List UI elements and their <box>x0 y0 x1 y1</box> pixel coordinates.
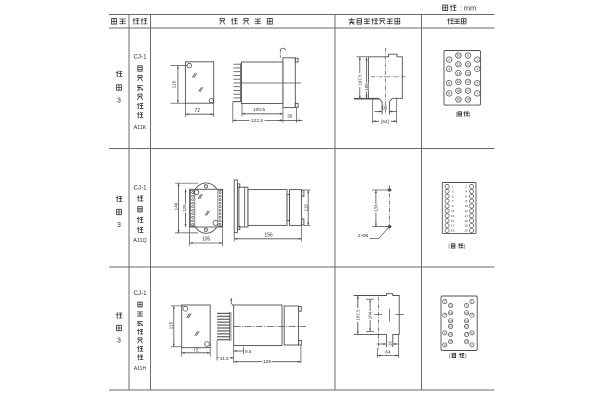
svg-text:11: 11 <box>451 209 454 213</box>
svg-text:19: 19 <box>466 98 470 102</box>
svg-text:107.5: 107.5 <box>355 309 360 321</box>
svg-text:107.5: 107.5 <box>357 74 362 86</box>
svg-text:CJ-1: CJ-1 <box>133 184 147 191</box>
svg-text:8: 8 <box>465 199 467 203</box>
svg-text:CJ-1: CJ-1 <box>133 53 147 60</box>
svg-text:6: 6 <box>465 194 467 198</box>
svg-text:1: 1 <box>476 58 478 62</box>
svg-text:18: 18 <box>457 89 461 93</box>
svg-text:126: 126 <box>263 359 271 365</box>
svg-text:5: 5 <box>476 81 478 85</box>
svg-text:104: 104 <box>368 311 373 319</box>
svg-text:10: 10 <box>457 54 461 58</box>
svg-text:9: 9 <box>467 54 469 58</box>
svg-text:133: 133 <box>374 204 379 212</box>
svg-text:16: 16 <box>457 80 461 84</box>
svg-text:20: 20 <box>457 98 461 102</box>
svg-text:15: 15 <box>451 219 455 223</box>
svg-text:16: 16 <box>387 341 392 347</box>
svg-text:2: 2 <box>448 58 450 62</box>
svg-text:115: 115 <box>304 204 309 212</box>
svg-text:3: 3 <box>476 67 478 71</box>
svg-text:13: 13 <box>466 71 470 75</box>
svg-text:3: 3 <box>117 222 121 229</box>
svg-text:A11H: A11H <box>134 366 147 372</box>
svg-text:17: 17 <box>451 224 455 228</box>
svg-text:17: 17 <box>466 89 470 93</box>
svg-text::: : <box>460 5 462 12</box>
svg-text:mm: mm <box>464 3 477 12</box>
svg-text:149: 149 <box>174 202 179 210</box>
svg-text:14: 14 <box>464 214 468 218</box>
svg-text:A11Q: A11Q <box>133 238 146 244</box>
svg-text:3: 3 <box>117 338 121 345</box>
svg-text:72: 72 <box>193 348 199 354</box>
svg-text:4: 4 <box>465 189 467 193</box>
svg-text:1: 1 <box>452 185 454 189</box>
svg-text:9: 9 <box>452 204 454 208</box>
svg-text:6: 6 <box>448 81 450 85</box>
svg-text:12: 12 <box>457 62 461 66</box>
svg-text:7: 7 <box>452 199 454 203</box>
svg-text:2-Φ5: 2-Φ5 <box>358 233 369 238</box>
svg-text:11: 11 <box>466 62 470 66</box>
svg-text:64: 64 <box>385 350 391 356</box>
svg-text:12: 12 <box>464 209 468 213</box>
svg-text:18: 18 <box>464 224 468 228</box>
svg-text:100.5: 100.5 <box>253 107 265 113</box>
svg-text:115: 115 <box>172 80 178 88</box>
svg-text:CJ-1: CJ-1 <box>133 290 147 297</box>
svg-text:4: 4 <box>448 67 450 71</box>
svg-text:31.5: 31.5 <box>220 356 229 361</box>
svg-text:3: 3 <box>117 98 121 105</box>
svg-text:19: 19 <box>451 229 455 233</box>
svg-text:10: 10 <box>464 204 468 208</box>
svg-text:72: 72 <box>195 108 201 114</box>
svg-text:35: 35 <box>287 114 293 119</box>
svg-text:7: 7 <box>476 92 478 96</box>
svg-text:14: 14 <box>457 71 461 75</box>
svg-text:15: 15 <box>466 80 470 84</box>
svg-text:16: 16 <box>381 105 387 111</box>
svg-text:9.5: 9.5 <box>245 349 252 354</box>
svg-text:122.5: 122.5 <box>251 118 263 124</box>
svg-text:13: 13 <box>451 214 455 218</box>
svg-text:125: 125 <box>182 204 187 212</box>
svg-text:20: 20 <box>464 229 468 233</box>
svg-text:105: 105 <box>202 236 211 242</box>
svg-text:5: 5 <box>452 194 454 198</box>
svg-text:156: 156 <box>264 232 273 238</box>
svg-text:3: 3 <box>452 189 454 193</box>
svg-text:2: 2 <box>465 185 467 189</box>
svg-text:8: 8 <box>448 92 450 96</box>
svg-text:105: 105 <box>364 83 369 91</box>
svg-text:[64]: [64] <box>381 119 389 124</box>
svg-text:A11K: A11K <box>134 125 147 131</box>
svg-text:115: 115 <box>169 321 175 329</box>
svg-text:16: 16 <box>464 219 468 223</box>
